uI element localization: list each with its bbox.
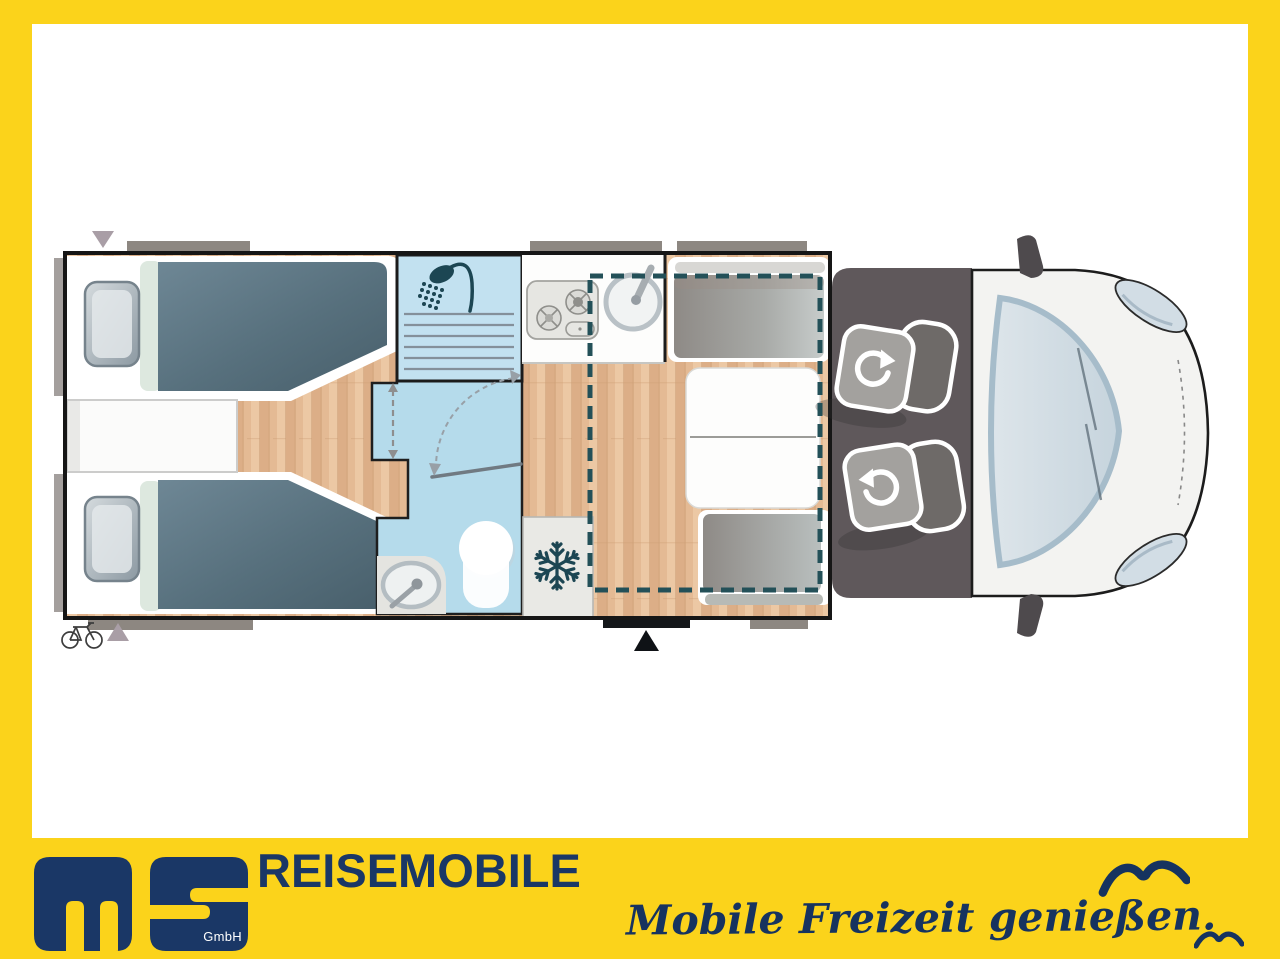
center-chest xyxy=(67,400,237,472)
toilet xyxy=(459,521,515,608)
frame-right xyxy=(1248,0,1280,959)
logo-gmbh-label: GmbH xyxy=(186,929,242,944)
dealer-floorplan-image: GmbH REISEMOBILE Mobile Freizeit genieße… xyxy=(0,0,1280,959)
seagull-icon xyxy=(1194,926,1244,956)
seagull-icon xyxy=(1098,855,1190,903)
pillow xyxy=(85,497,139,581)
dinette-table xyxy=(686,368,820,508)
frame-top xyxy=(0,0,1280,24)
rear-marker-icon xyxy=(92,231,114,248)
floorplan-svg xyxy=(0,0,1280,959)
mirror-bottom xyxy=(1017,594,1043,637)
company-name: REISEMOBILE xyxy=(257,843,581,898)
bathroom-sink xyxy=(377,556,446,614)
entry-arrow-icon xyxy=(634,630,659,651)
mirror-top xyxy=(1017,235,1043,278)
fridge xyxy=(523,517,593,617)
logo-letter-m xyxy=(34,857,132,951)
cab xyxy=(813,235,1208,637)
dinette-bench-rear xyxy=(668,257,830,362)
pillow xyxy=(85,282,139,366)
frame-left xyxy=(0,0,32,959)
shower-cabin xyxy=(397,255,522,381)
stove-icon xyxy=(527,281,598,339)
kitchen xyxy=(522,255,665,363)
